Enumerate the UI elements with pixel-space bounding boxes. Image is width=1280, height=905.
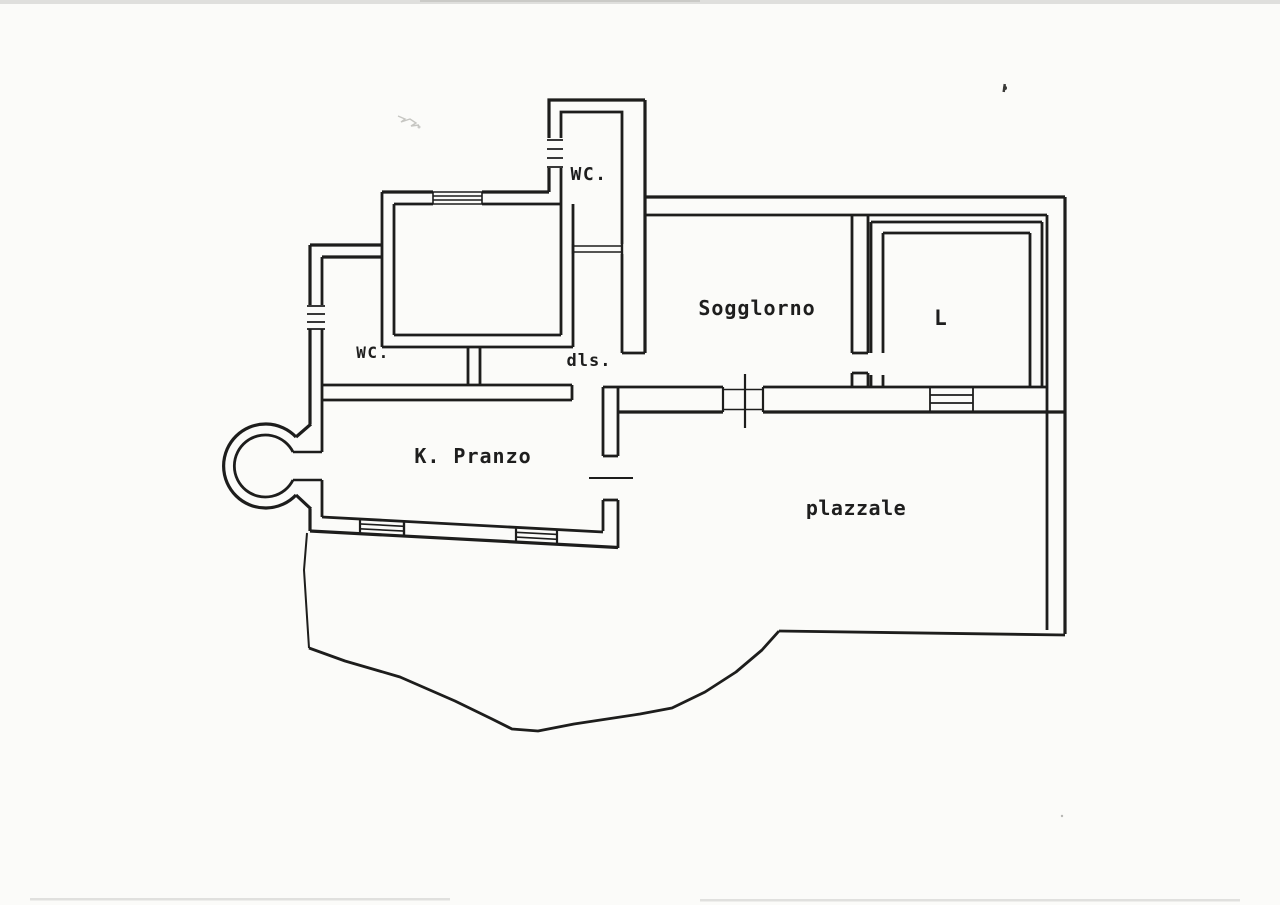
scan-edge-bottom-left (30, 898, 450, 901)
walls-right-wing (603, 197, 1065, 634)
boundary-line-south (779, 631, 1065, 635)
pencil-smudge (398, 116, 419, 126)
window-hatch-kitchen-a (360, 524, 404, 531)
walls-l-room (871, 222, 1042, 387)
walls-inner-room (382, 192, 573, 347)
window-hatch-top-wc (547, 140, 563, 167)
dust-speck (1061, 815, 1063, 817)
label-courtyard: plazzale (806, 496, 906, 520)
walls-top-wc (547, 100, 645, 335)
ink-speck-tail (1002, 84, 1006, 92)
label-soggiorno: Sogglorno (698, 296, 815, 320)
label-l-room: L (934, 306, 948, 330)
wall-soggiorno-l (852, 215, 868, 387)
wall-stub (468, 347, 480, 385)
label-wc-top: WC. (570, 164, 607, 185)
terrain-boundary-line (309, 631, 779, 731)
gate-threshold (723, 390, 763, 410)
courtyard-boundary (304, 533, 1065, 731)
room-labels: WC. Sogglorno L WC. dls. K. Pranzo plazz… (356, 164, 948, 520)
window-hatch-inner-room (433, 192, 482, 204)
pencil-dot (418, 126, 421, 129)
walls-hallway (622, 100, 645, 353)
scan-edge-top-dark (420, 0, 700, 2)
document-page: WC. Sogglorno L WC. dls. K. Pranzo plazz… (0, 0, 1280, 905)
boundary-line-west (304, 533, 309, 648)
door-threshold-top-wc (573, 246, 622, 252)
walls-left-wing (307, 192, 573, 531)
window-hatch-l-room (930, 387, 973, 412)
stair-turret (224, 424, 322, 509)
scan-edge-bottom-right (700, 899, 1240, 902)
window-hatch-kitchen-b (516, 532, 557, 539)
window-hatch-west-wall (307, 306, 325, 329)
label-kitchen-dining: K. Pranzo (414, 444, 531, 468)
floor-plan-svg: WC. Sogglorno L WC. dls. K. Pranzo plazz… (0, 0, 1280, 905)
scan-artifacts (0, 0, 1280, 902)
label-wc-left: WC. (356, 343, 389, 362)
label-hallway: dls. (567, 351, 612, 371)
